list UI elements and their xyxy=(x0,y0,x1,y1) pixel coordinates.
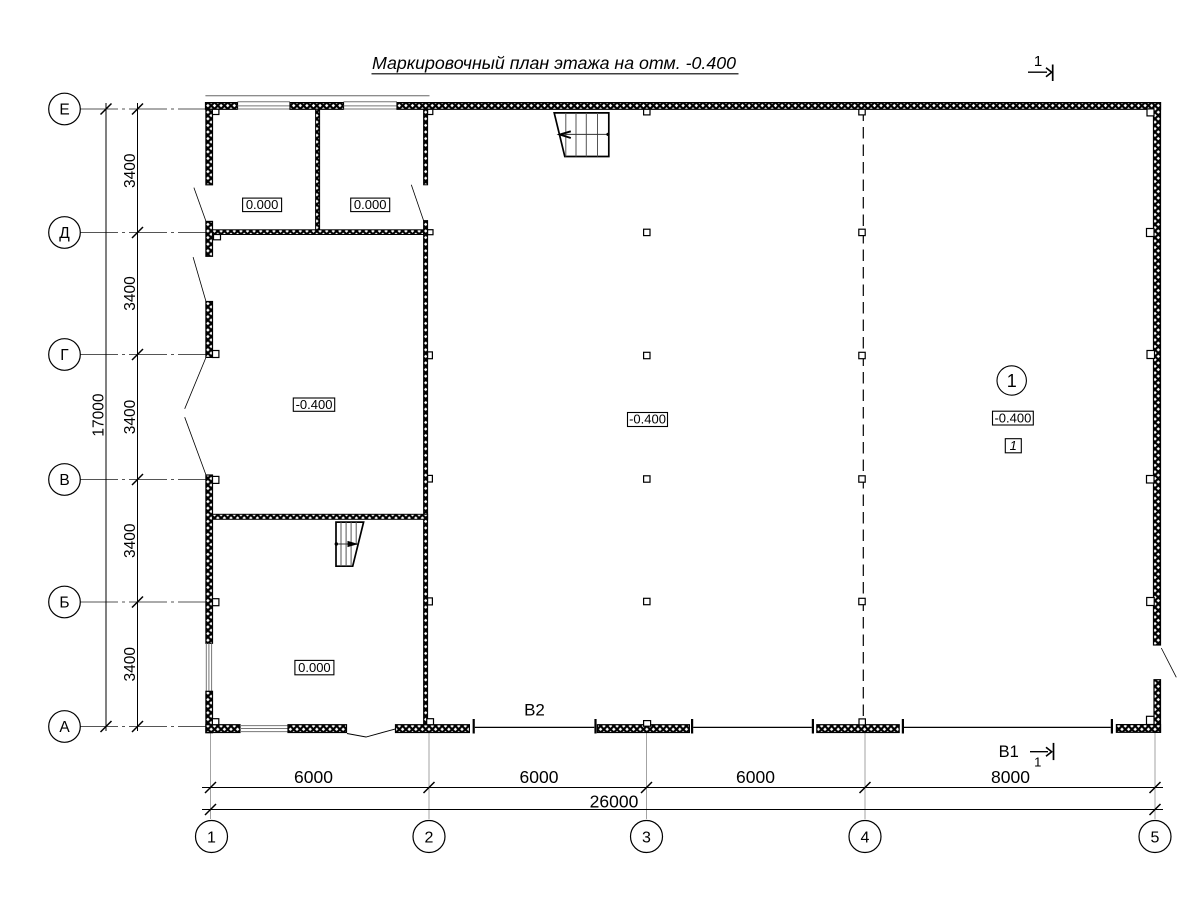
svg-text:1: 1 xyxy=(207,830,216,847)
svg-text:Е: Е xyxy=(59,102,69,119)
svg-text:Д: Д xyxy=(59,225,70,242)
svg-text:6000: 6000 xyxy=(520,767,559,787)
svg-text:-0.400: -0.400 xyxy=(994,410,1031,425)
svg-text:В1: В1 xyxy=(999,743,1019,761)
svg-text:0.000: 0.000 xyxy=(298,660,331,675)
svg-text:6000: 6000 xyxy=(294,767,333,787)
svg-text:Г: Г xyxy=(60,347,69,364)
svg-text:3400: 3400 xyxy=(122,523,139,558)
svg-text:5: 5 xyxy=(1151,830,1160,847)
svg-text:6000: 6000 xyxy=(736,767,775,787)
svg-text:1: 1 xyxy=(1010,438,1017,453)
svg-text:3: 3 xyxy=(642,830,651,847)
svg-text:17000: 17000 xyxy=(91,393,108,436)
svg-text:-0.400: -0.400 xyxy=(296,397,333,412)
svg-text:3400: 3400 xyxy=(122,276,139,311)
svg-text:26000: 26000 xyxy=(590,792,639,812)
svg-text:3400: 3400 xyxy=(122,647,139,682)
svg-text:0.000: 0.000 xyxy=(246,197,279,212)
svg-text:1: 1 xyxy=(1034,755,1041,770)
svg-text:А: А xyxy=(59,719,70,736)
svg-text:3400: 3400 xyxy=(122,399,139,434)
svg-text:1: 1 xyxy=(1034,53,1042,70)
svg-text:2: 2 xyxy=(425,830,434,847)
svg-text:8000: 8000 xyxy=(991,767,1030,787)
svg-text:3400: 3400 xyxy=(122,153,139,188)
svg-text:Маркировочный план этажа на от: Маркировочный план этажа на отм. -0.400 xyxy=(372,53,736,73)
svg-text:0.000: 0.000 xyxy=(354,197,387,212)
svg-text:В: В xyxy=(59,472,69,489)
svg-text:В2: В2 xyxy=(524,701,545,720)
svg-text:Б: Б xyxy=(59,595,69,612)
svg-text:1: 1 xyxy=(1007,371,1017,391)
svg-text:-0.400: -0.400 xyxy=(629,412,666,427)
svg-text:4: 4 xyxy=(861,830,870,847)
